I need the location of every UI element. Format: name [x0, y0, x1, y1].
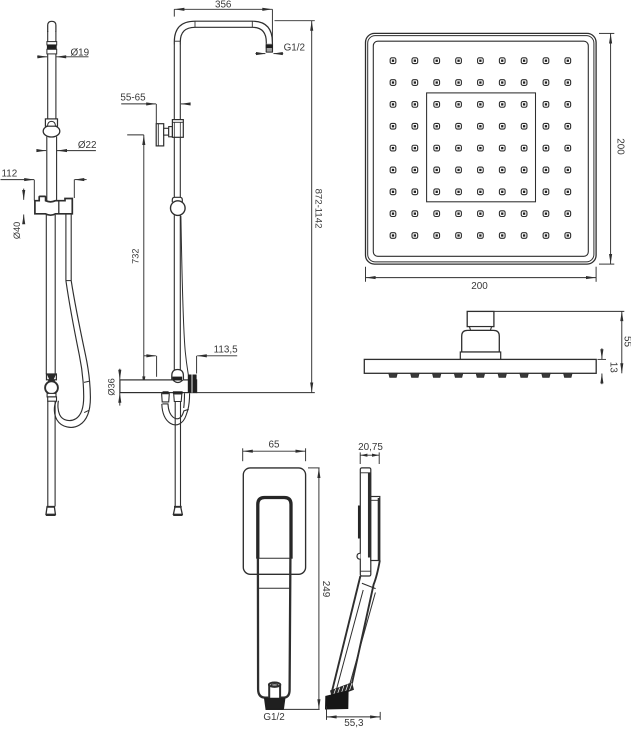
svg-text:13: 13	[607, 362, 618, 373]
svg-text:200: 200	[614, 138, 625, 155]
svg-text:112: 112	[2, 168, 18, 179]
svg-text:G1/2: G1/2	[263, 712, 284, 723]
svg-text:20,75: 20,75	[358, 442, 383, 453]
svg-text:55,3: 55,3	[344, 718, 364, 729]
svg-text:113,5: 113,5	[214, 345, 238, 356]
svg-text:732: 732	[130, 249, 140, 264]
svg-text:55: 55	[621, 336, 631, 347]
svg-text:65: 65	[269, 439, 280, 450]
svg-text:Ø36: Ø36	[106, 378, 116, 395]
svg-text:G1/2: G1/2	[284, 43, 305, 54]
svg-text:Ø22: Ø22	[78, 140, 97, 151]
svg-text:55-65: 55-65	[120, 93, 146, 104]
svg-text:872-1142: 872-1142	[312, 189, 323, 229]
svg-text:249: 249	[320, 581, 331, 598]
svg-text:200: 200	[471, 281, 488, 292]
svg-text:Ø40: Ø40	[12, 222, 22, 239]
